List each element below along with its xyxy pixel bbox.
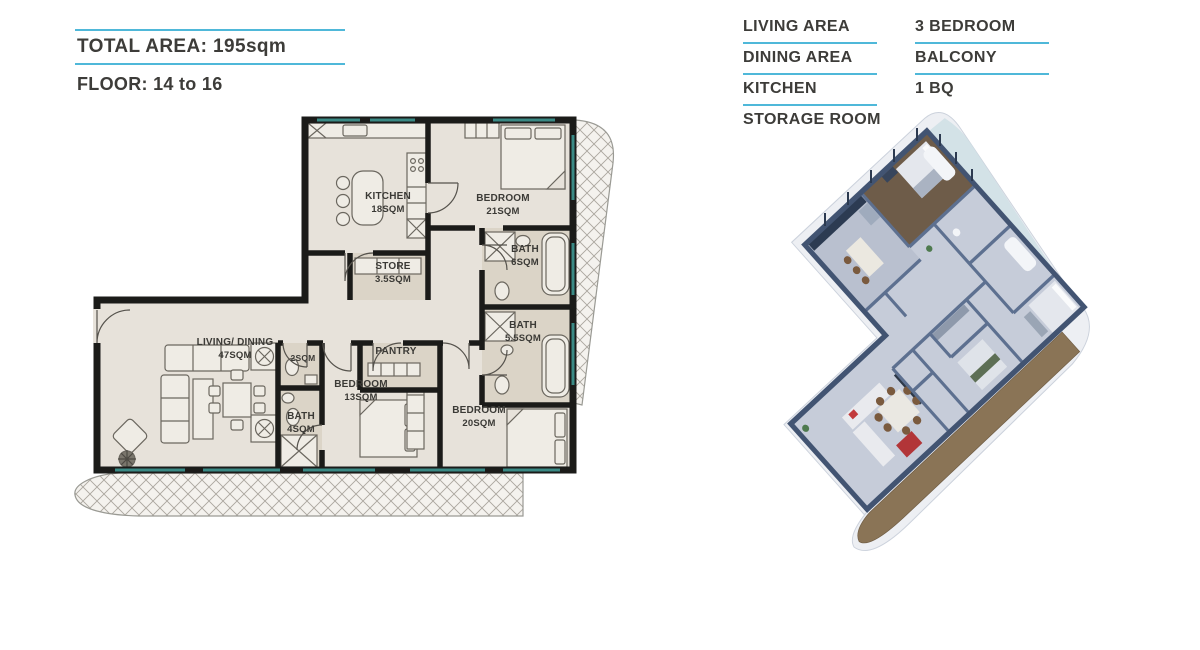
label-bedroom-13: BEDROOM: [334, 379, 388, 390]
label-store: STORE: [375, 261, 410, 272]
floor-plan-2d: KITCHEN 18SQM BEDROOM 21SQM STORE 3.5SQM…: [55, 95, 655, 555]
label-bedroom-20: BEDROOM: [452, 405, 506, 416]
label-bedroom-13-area: 13SQM: [344, 392, 377, 403]
accent-rule-mid: [75, 63, 345, 65]
label-bath-55: BATH: [509, 320, 537, 331]
legend-item-3-bedroom: 3 BEDROOM: [915, 18, 1049, 44]
balcony-bottom: [75, 473, 523, 516]
isometric-render-3d: [764, 107, 1124, 567]
label-kitchen-area: 18SQM: [371, 204, 404, 215]
legend-item-dining-area: DINING AREA: [743, 49, 877, 75]
label-bath-4: BATH: [287, 411, 315, 422]
legend-item-balcony: BALCONY: [915, 49, 1049, 75]
label-bath-55-area: 5.5SQM: [505, 333, 541, 344]
legend-item-1-bq: 1 BQ: [915, 80, 1049, 104]
legend-item-living-area: LIVING AREA: [743, 18, 877, 44]
closet: [407, 395, 424, 449]
label-living: LIVING/ DINING: [197, 337, 274, 348]
label-bath-6: BATH: [511, 244, 539, 255]
balcony-right: [574, 120, 613, 405]
floorplan-sheet: TOTAL AREA: 195sqm FLOOR: 14 to 16 LIVIN…: [0, 0, 1200, 650]
label-bedroom-21: BEDROOM: [476, 193, 530, 204]
accent-rule-top: [75, 29, 345, 31]
label-pantry: PANTRY: [375, 346, 416, 357]
label-bath-6-area: 6SQM: [511, 257, 539, 268]
legend-column-2: 3 BEDROOM BALCONY 1 BQ: [915, 18, 1049, 109]
legend-item-kitchen: KITCHEN: [743, 80, 877, 106]
bed-bedroom-20: [507, 409, 567, 467]
label-kitchen: KITCHEN: [365, 191, 411, 202]
label-living-area: 47SQM: [218, 350, 251, 361]
label-store-area: 3.5SQM: [375, 274, 411, 285]
floor-range-label: FLOOR: 14 to 16: [77, 74, 223, 95]
label-bath-4-area: 4SQM: [287, 424, 315, 435]
label-bedroom-21-area: 21SQM: [486, 206, 519, 217]
label-bedroom-20-area: 20SQM: [462, 418, 495, 429]
label-wc: 2SQM: [291, 353, 316, 363]
total-area-label: TOTAL AREA: 195sqm: [77, 36, 286, 58]
